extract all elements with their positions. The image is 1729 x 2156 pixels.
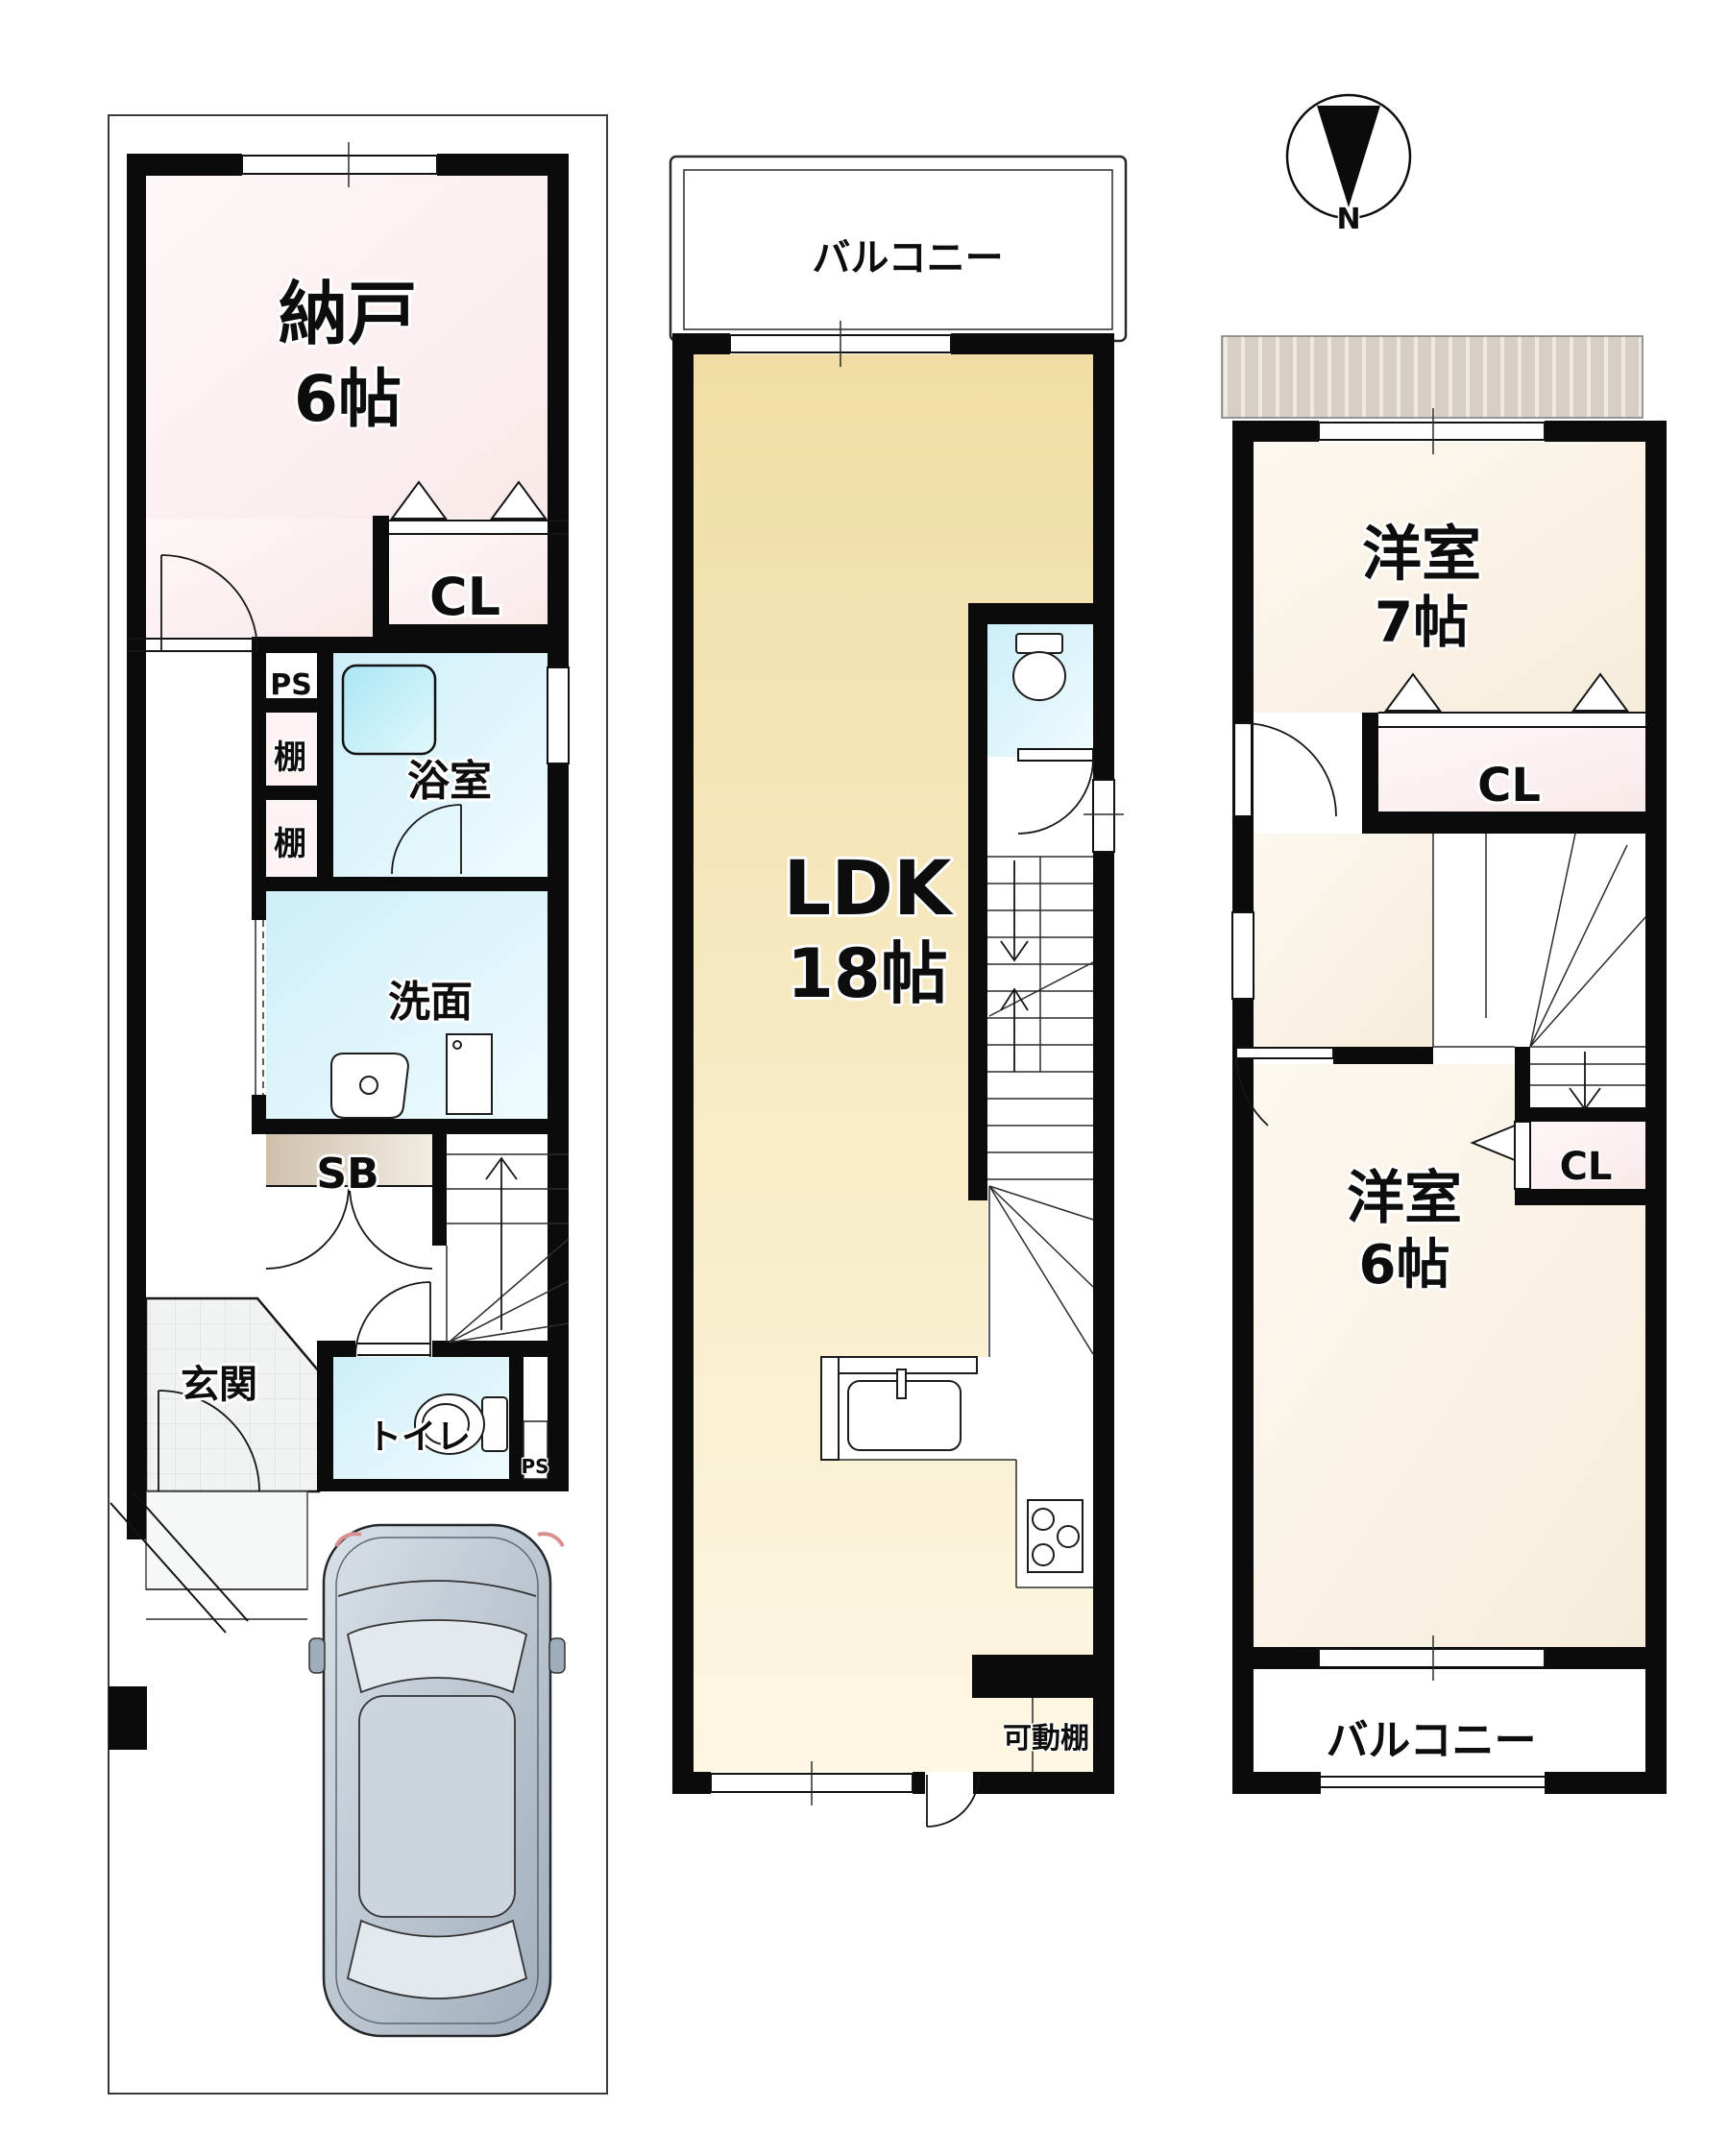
shelf-label-b: 棚 (274, 825, 306, 863)
toilet-label: トイレ (367, 1417, 471, 1457)
room-size-storage: 6帖 (294, 362, 402, 436)
shelf-label-a: 棚 (274, 739, 306, 777)
washroom-label: 洗面 (388, 978, 473, 1027)
room-label-6: 洋室 (1347, 1165, 1462, 1232)
stove-icon (1028, 1500, 1083, 1572)
room-size-6: 6帖 (1359, 1234, 1450, 1296)
closet-top-label: CL (1477, 759, 1541, 812)
toilet-icon-2f (1013, 634, 1065, 700)
room-label-7: 洋室 (1362, 519, 1481, 589)
room-size-ldk: 18帖 (787, 934, 947, 1013)
floor1-plan: 納戸 6帖 CL PS 棚 棚 浴室 洗面 SB 玄関 トイレ PS (109, 115, 607, 2094)
ps-label-upper: PS (270, 668, 312, 702)
closet-label-1f: CL (429, 567, 500, 627)
closet-bottom-label: CL (1560, 1145, 1613, 1189)
window-bath (548, 667, 569, 763)
shoebox-label: SB (316, 1150, 378, 1199)
washbasin-icon (331, 1054, 408, 1118)
window-stair-3f (1232, 912, 1254, 999)
floor2-plan: バルコニー LDK 18帖 可動棚 (670, 157, 1126, 1827)
ps-label-lower: PS (521, 1455, 548, 1478)
floor-plan-page: 納戸 6帖 CL PS 棚 棚 浴室 洗面 SB 玄関 トイレ PS (0, 0, 1729, 2156)
door-ldk-bottom (927, 1775, 979, 1827)
compass-north-label: N (1336, 203, 1360, 236)
car-icon (309, 1525, 565, 2036)
floor3-plan: 洋室 7帖 CL 洋室 6帖 CL バルコニー (1222, 336, 1667, 1794)
roof-hatch (1222, 336, 1643, 418)
compass-icon: N (1287, 95, 1410, 236)
balcony-label-3f: バルコニー (1326, 1716, 1536, 1765)
balcony-label-2f: バルコニー (812, 236, 1003, 280)
room-size-7: 7帖 (1375, 590, 1469, 655)
room-label-storage: 納戸 (279, 274, 417, 354)
bath-label: 浴室 (407, 757, 492, 806)
stairs-down-arrow-3f (1570, 1052, 1600, 1109)
entrance-label: 玄関 (181, 1363, 257, 1407)
room-label-ldk: LDK (784, 846, 954, 933)
bathtub-icon (343, 666, 435, 754)
washing-machine-icon (447, 1034, 492, 1114)
door-room7 (1234, 723, 1336, 816)
movable-shelf-label: 可動棚 (1003, 1722, 1089, 1756)
